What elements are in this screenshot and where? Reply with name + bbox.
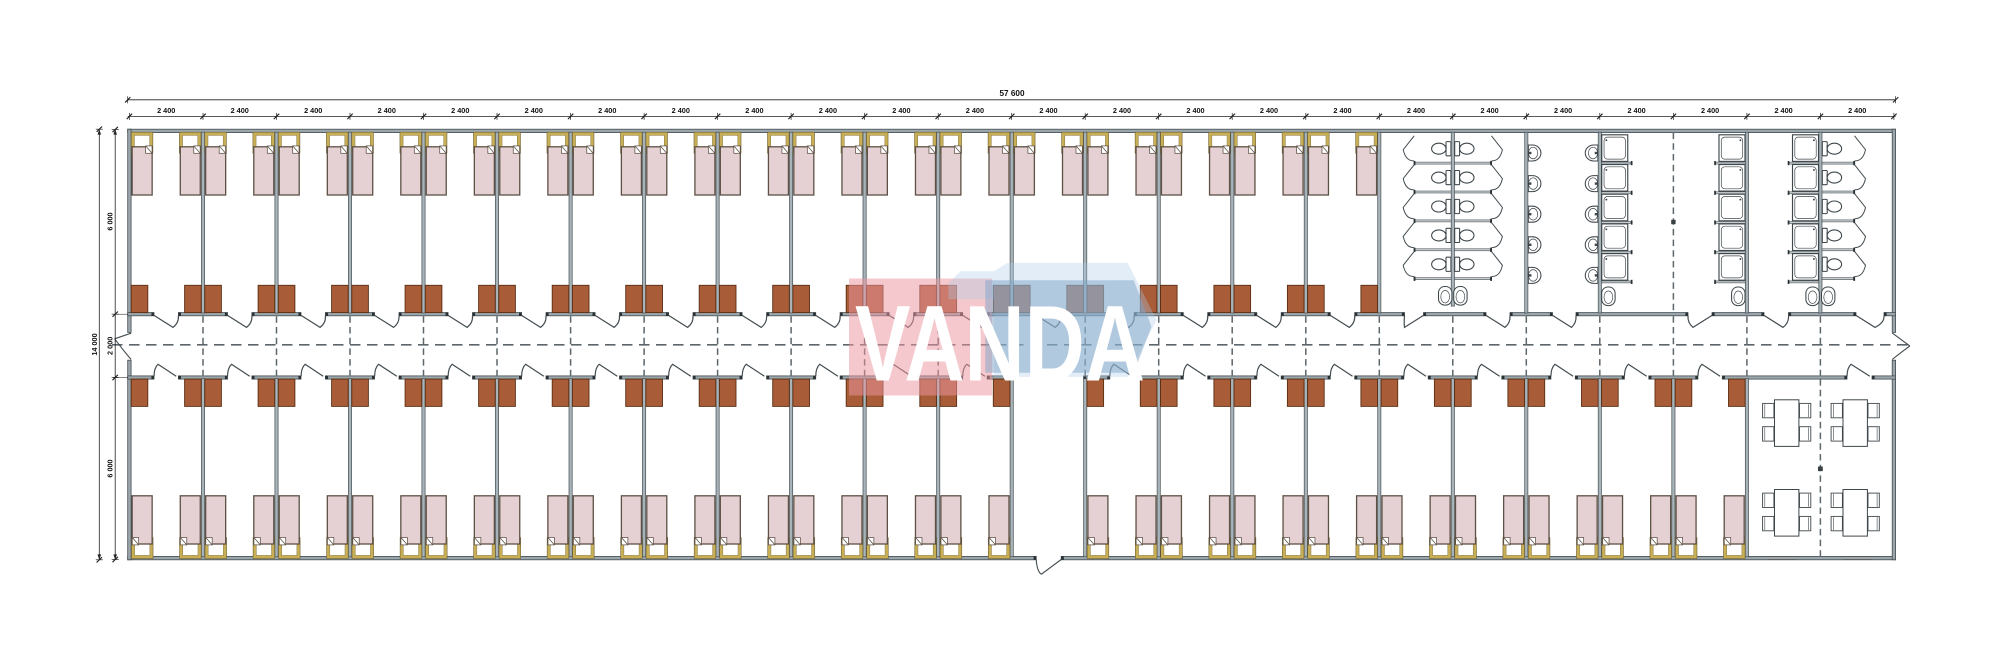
svg-text:2 400: 2 400 [1407, 106, 1425, 115]
svg-text:2 400: 2 400 [1774, 106, 1792, 115]
svg-text:57 600: 57 600 [999, 89, 1024, 98]
svg-text:2 400: 2 400 [892, 106, 910, 115]
svg-text:2 400: 2 400 [1480, 106, 1498, 115]
svg-text:2 400: 2 400 [451, 106, 469, 115]
svg-text:2 400: 2 400 [1113, 106, 1131, 115]
svg-text:2 400: 2 400 [1627, 106, 1645, 115]
svg-text:2 400: 2 400 [598, 106, 616, 115]
svg-text:2 400: 2 400 [819, 106, 837, 115]
svg-text:6 000: 6 000 [106, 459, 115, 477]
svg-text:14 000: 14 000 [90, 333, 99, 355]
svg-text:2 400: 2 400 [1333, 106, 1351, 115]
svg-text:6 000: 6 000 [106, 212, 115, 230]
svg-text:2 400: 2 400 [1554, 106, 1572, 115]
svg-text:2 400: 2 400 [1186, 106, 1204, 115]
svg-text:2 400: 2 400 [672, 106, 690, 115]
svg-text:2 400: 2 400 [525, 106, 543, 115]
svg-text:2 400: 2 400 [1039, 106, 1057, 115]
svg-text:2 400: 2 400 [231, 106, 249, 115]
svg-text:VANDA: VANDA [855, 284, 1145, 404]
svg-text:2 400: 2 400 [745, 106, 763, 115]
svg-text:2 400: 2 400 [157, 106, 175, 115]
svg-text:2 000: 2 000 [106, 337, 115, 355]
svg-text:2 400: 2 400 [378, 106, 396, 115]
svg-text:2 400: 2 400 [1848, 106, 1866, 115]
svg-text:2 400: 2 400 [304, 106, 322, 115]
svg-text:2 400: 2 400 [1701, 106, 1719, 115]
svg-text:2 400: 2 400 [1260, 106, 1278, 115]
svg-text:2 400: 2 400 [966, 106, 984, 115]
